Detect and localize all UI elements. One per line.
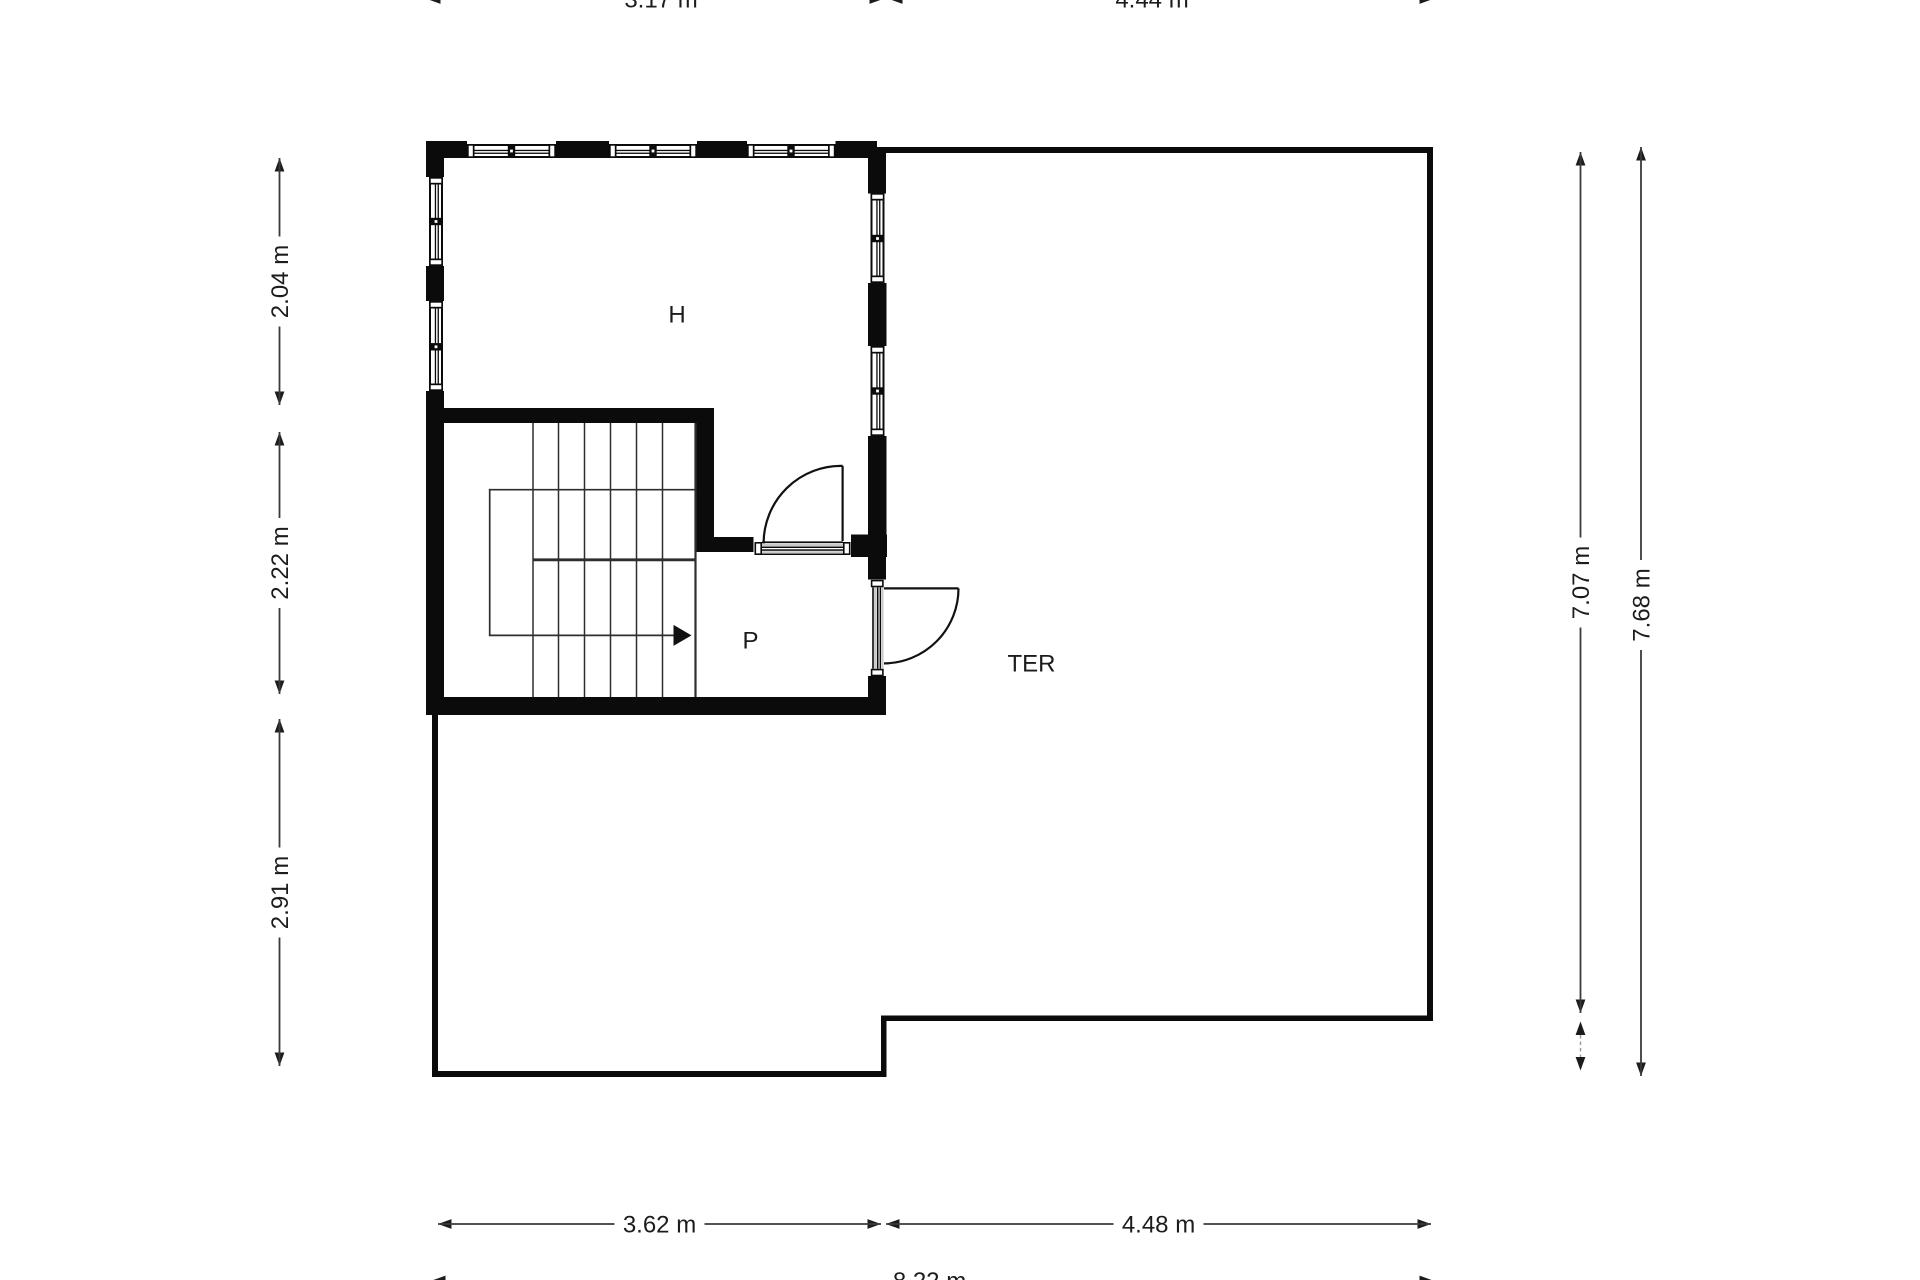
svg-text:TER: TER bbox=[1008, 651, 1056, 678]
svg-text:7.68 m: 7.68 m bbox=[1629, 568, 1656, 641]
svg-text:7.07 m: 7.07 m bbox=[1568, 546, 1595, 619]
svg-text:H: H bbox=[668, 302, 685, 329]
svg-text:8.22 m: 8.22 m bbox=[893, 1268, 966, 1280]
svg-text:4.48 m: 4.48 m bbox=[1122, 1212, 1195, 1239]
svg-text:3.17 m: 3.17 m bbox=[624, 0, 697, 14]
svg-text:P: P bbox=[742, 628, 758, 655]
svg-text:2.22 m: 2.22 m bbox=[267, 526, 294, 599]
svg-text:3.62 m: 3.62 m bbox=[623, 1212, 696, 1239]
svg-text:4.44 m: 4.44 m bbox=[1115, 0, 1188, 14]
svg-text:2.04 m: 2.04 m bbox=[267, 245, 294, 318]
svg-text:2.91 m: 2.91 m bbox=[267, 856, 294, 929]
